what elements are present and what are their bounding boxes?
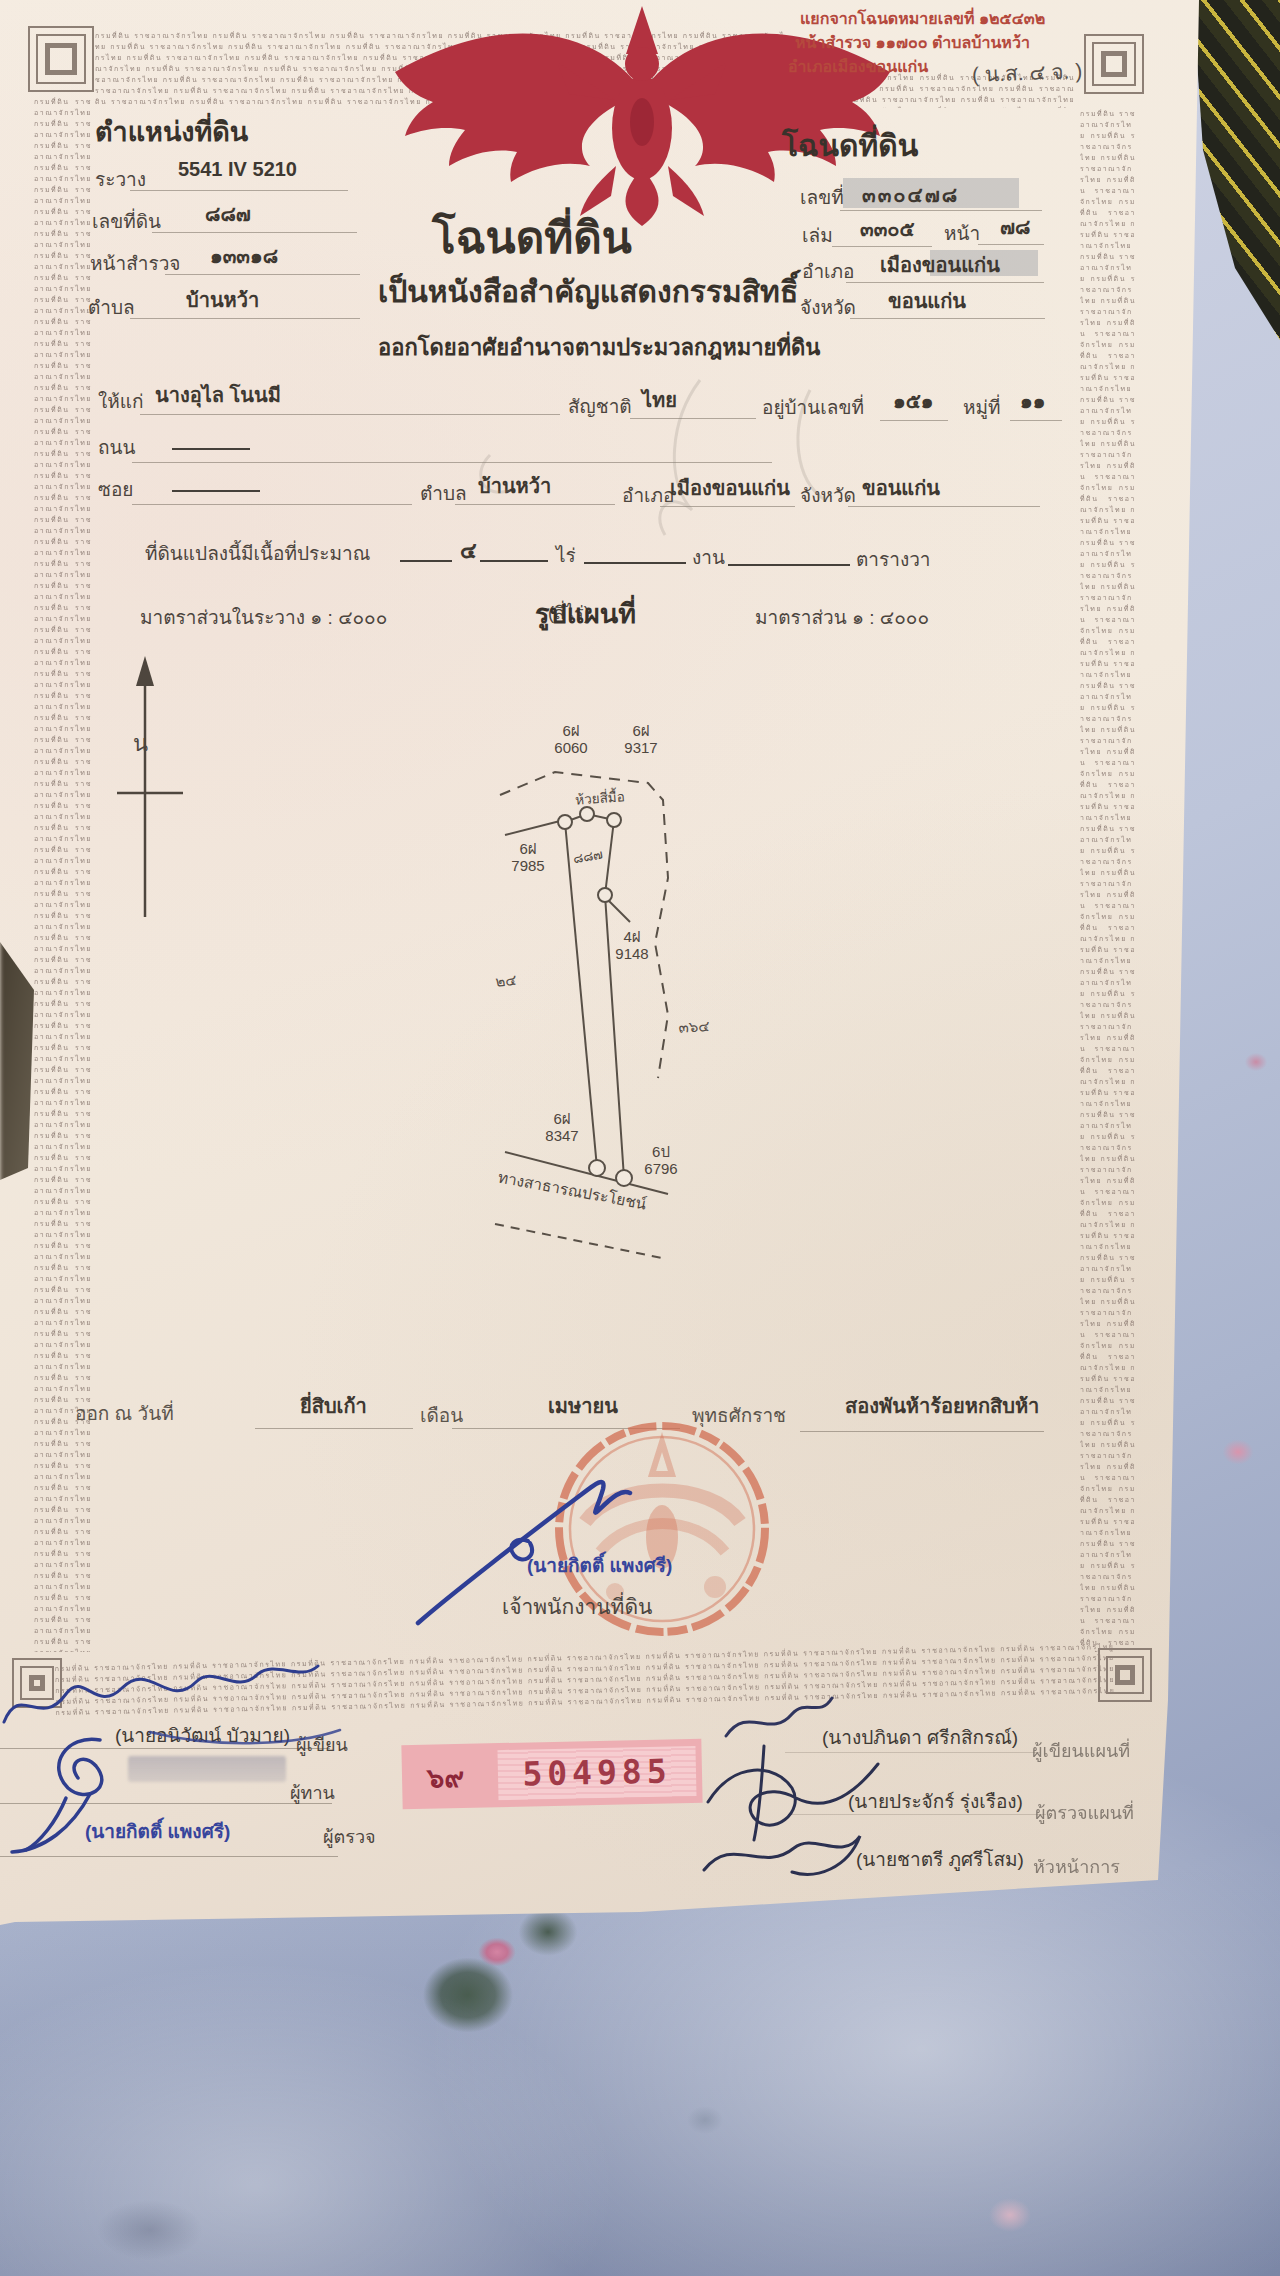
rawang-value: 5541 IV 5210 [178, 158, 297, 181]
volume-value: ๓๓๐๕ [860, 213, 915, 245]
section-head-signature [696, 1822, 868, 1888]
issue-month-label: เดือน [420, 1400, 463, 1430]
separation-note-line3: อำเภอเมืองขอนแก่น [788, 54, 928, 79]
marker-label: 6ฝ6060 [554, 722, 587, 756]
serial-number-panel: 504985 [497, 1746, 696, 1800]
form-code: ( น.ส. ๔ จ. ) [971, 54, 1082, 91]
amphoe-label: อำเภอ [802, 256, 855, 286]
moo-label: หมู่ที่ [963, 392, 1001, 422]
province-value: ขอนแก่น [888, 285, 966, 317]
volume-label: เล่ม [802, 220, 833, 250]
border-corner-bottom-right [1098, 1648, 1152, 1702]
hand-note-right: ๓๖๔ [678, 1017, 710, 1036]
position-block-title: ตำแหน่งที่ดิน [95, 110, 248, 153]
marker-label: 6ฝ9317 [624, 722, 657, 756]
deed-block-title: โฉนดที่ดิน [782, 122, 918, 169]
road-blank-dash [172, 448, 250, 450]
survey-page-label: หน้าสำรวจ [90, 248, 180, 278]
parcel-no-label: เลขที่ดิน [92, 206, 161, 236]
examiner-role: ผู้ตรวจ [323, 1822, 376, 1851]
tambon-value: บ้านหว้า [186, 284, 259, 316]
section-head-name: (นายชาตรี ภูศรีโสม) [856, 1844, 1024, 1874]
tambon-label: ตำบล [88, 292, 135, 322]
serial-number: 504985 [497, 1746, 696, 1800]
deed-sub-title: เป็นหนังสือสำคัญแสดงกรรมสิทธิ์ [378, 268, 798, 315]
rawang-label: ระวาง [95, 164, 146, 194]
marker-label: 6ฝ8347 [545, 1110, 578, 1144]
issue-prefix: ออก ณ วันที่ [75, 1398, 174, 1428]
soi-blank-dash [172, 490, 260, 492]
serial-book-number: ๖๙ [427, 1756, 465, 1800]
border-right-band: กรมที่ดิน ราชอาณาจักรไทย กรมที่ดิน ราชอา… [1080, 108, 1136, 1652]
province-label: จังหวัด [800, 292, 856, 322]
pencil-scribbles [430, 360, 950, 620]
page-label: หน้า [944, 218, 980, 248]
hand-note-left: ๒๔ [495, 971, 518, 990]
given-to-label: ให้แก่ [98, 386, 144, 416]
border-corner-top-left [28, 26, 94, 92]
marker-label: 4ฝ9148 [615, 928, 648, 962]
officer-name: (นายกิตติ์ แพงศรี) [527, 1550, 672, 1580]
border-corner-top-right [1084, 34, 1144, 94]
section-head-role: หัวหน้าการ [1033, 1852, 1120, 1881]
north-label: น [133, 726, 148, 761]
deed-main-title: โฉนดที่ดิน [432, 202, 632, 272]
owner-name: นางอุไล โนนมี [155, 379, 281, 411]
moo-value: ๑๑ [1020, 385, 1045, 417]
proofreader-role: ผู้ทาน [290, 1778, 335, 1807]
examiner-signature [6, 1788, 98, 1860]
map-examiner-role: ผู้ตรวจแผนที่ [1035, 1798, 1134, 1827]
marker-label: 6ฝ7985 [511, 840, 544, 874]
amphoe-value: เมืองขอนแก่น [880, 249, 1000, 281]
soi-label: ซอย [98, 474, 133, 504]
issue-year: สองพันห้าร้อยหกสิบห้า [845, 1390, 1039, 1422]
page-value: ๗๘ [1000, 211, 1030, 243]
separation-note-line1: แยกจากโฉนดหมายเลขที่ ๑๒๕๔๓๒ [800, 6, 1045, 31]
survey-page-value: ๑๓๓๑๘ [210, 240, 278, 272]
separation-note-line2: หน้าสำรวจ ๑๑๗๐๐ ตำบลบ้านหว้า [795, 30, 1030, 55]
map-writer-role: ผู้เขียนแผนที่ [1032, 1736, 1130, 1765]
serial-number-stamp: ๖๙ 504985 [401, 1739, 702, 1809]
north-arrow [85, 650, 205, 940]
faint-name-stamp [128, 1756, 286, 1782]
officer-title: เจ้าพนักงานที่ดิน [502, 1590, 652, 1623]
deed-no-value: ๓๓๐๔๗๘ [862, 179, 959, 211]
photo-of-land-deed: { "border": {"microtext": "กรมที่ดิน ราช… [0, 0, 1280, 2276]
marker-label: 6ป6796 [644, 1143, 677, 1177]
issue-day: ยี่สิบเก้า [300, 1390, 367, 1422]
parcel-no-value: ๘๘๗ [205, 198, 251, 230]
deed-no-label: เลขที่ [800, 182, 844, 212]
examiner-name: (นายกิตติ์ แพงศรี) [85, 1816, 230, 1846]
area-prefix: ที่ดินแปลงนี้มีเนื้อที่ประมาณ [145, 538, 370, 568]
road-label: ถนน [98, 432, 135, 462]
scale-left: มาตราส่วนในระวาง ๑ : ๔๐๐๐ [140, 602, 387, 632]
stream-label: ห้วยสี่มื้อ [575, 788, 626, 808]
